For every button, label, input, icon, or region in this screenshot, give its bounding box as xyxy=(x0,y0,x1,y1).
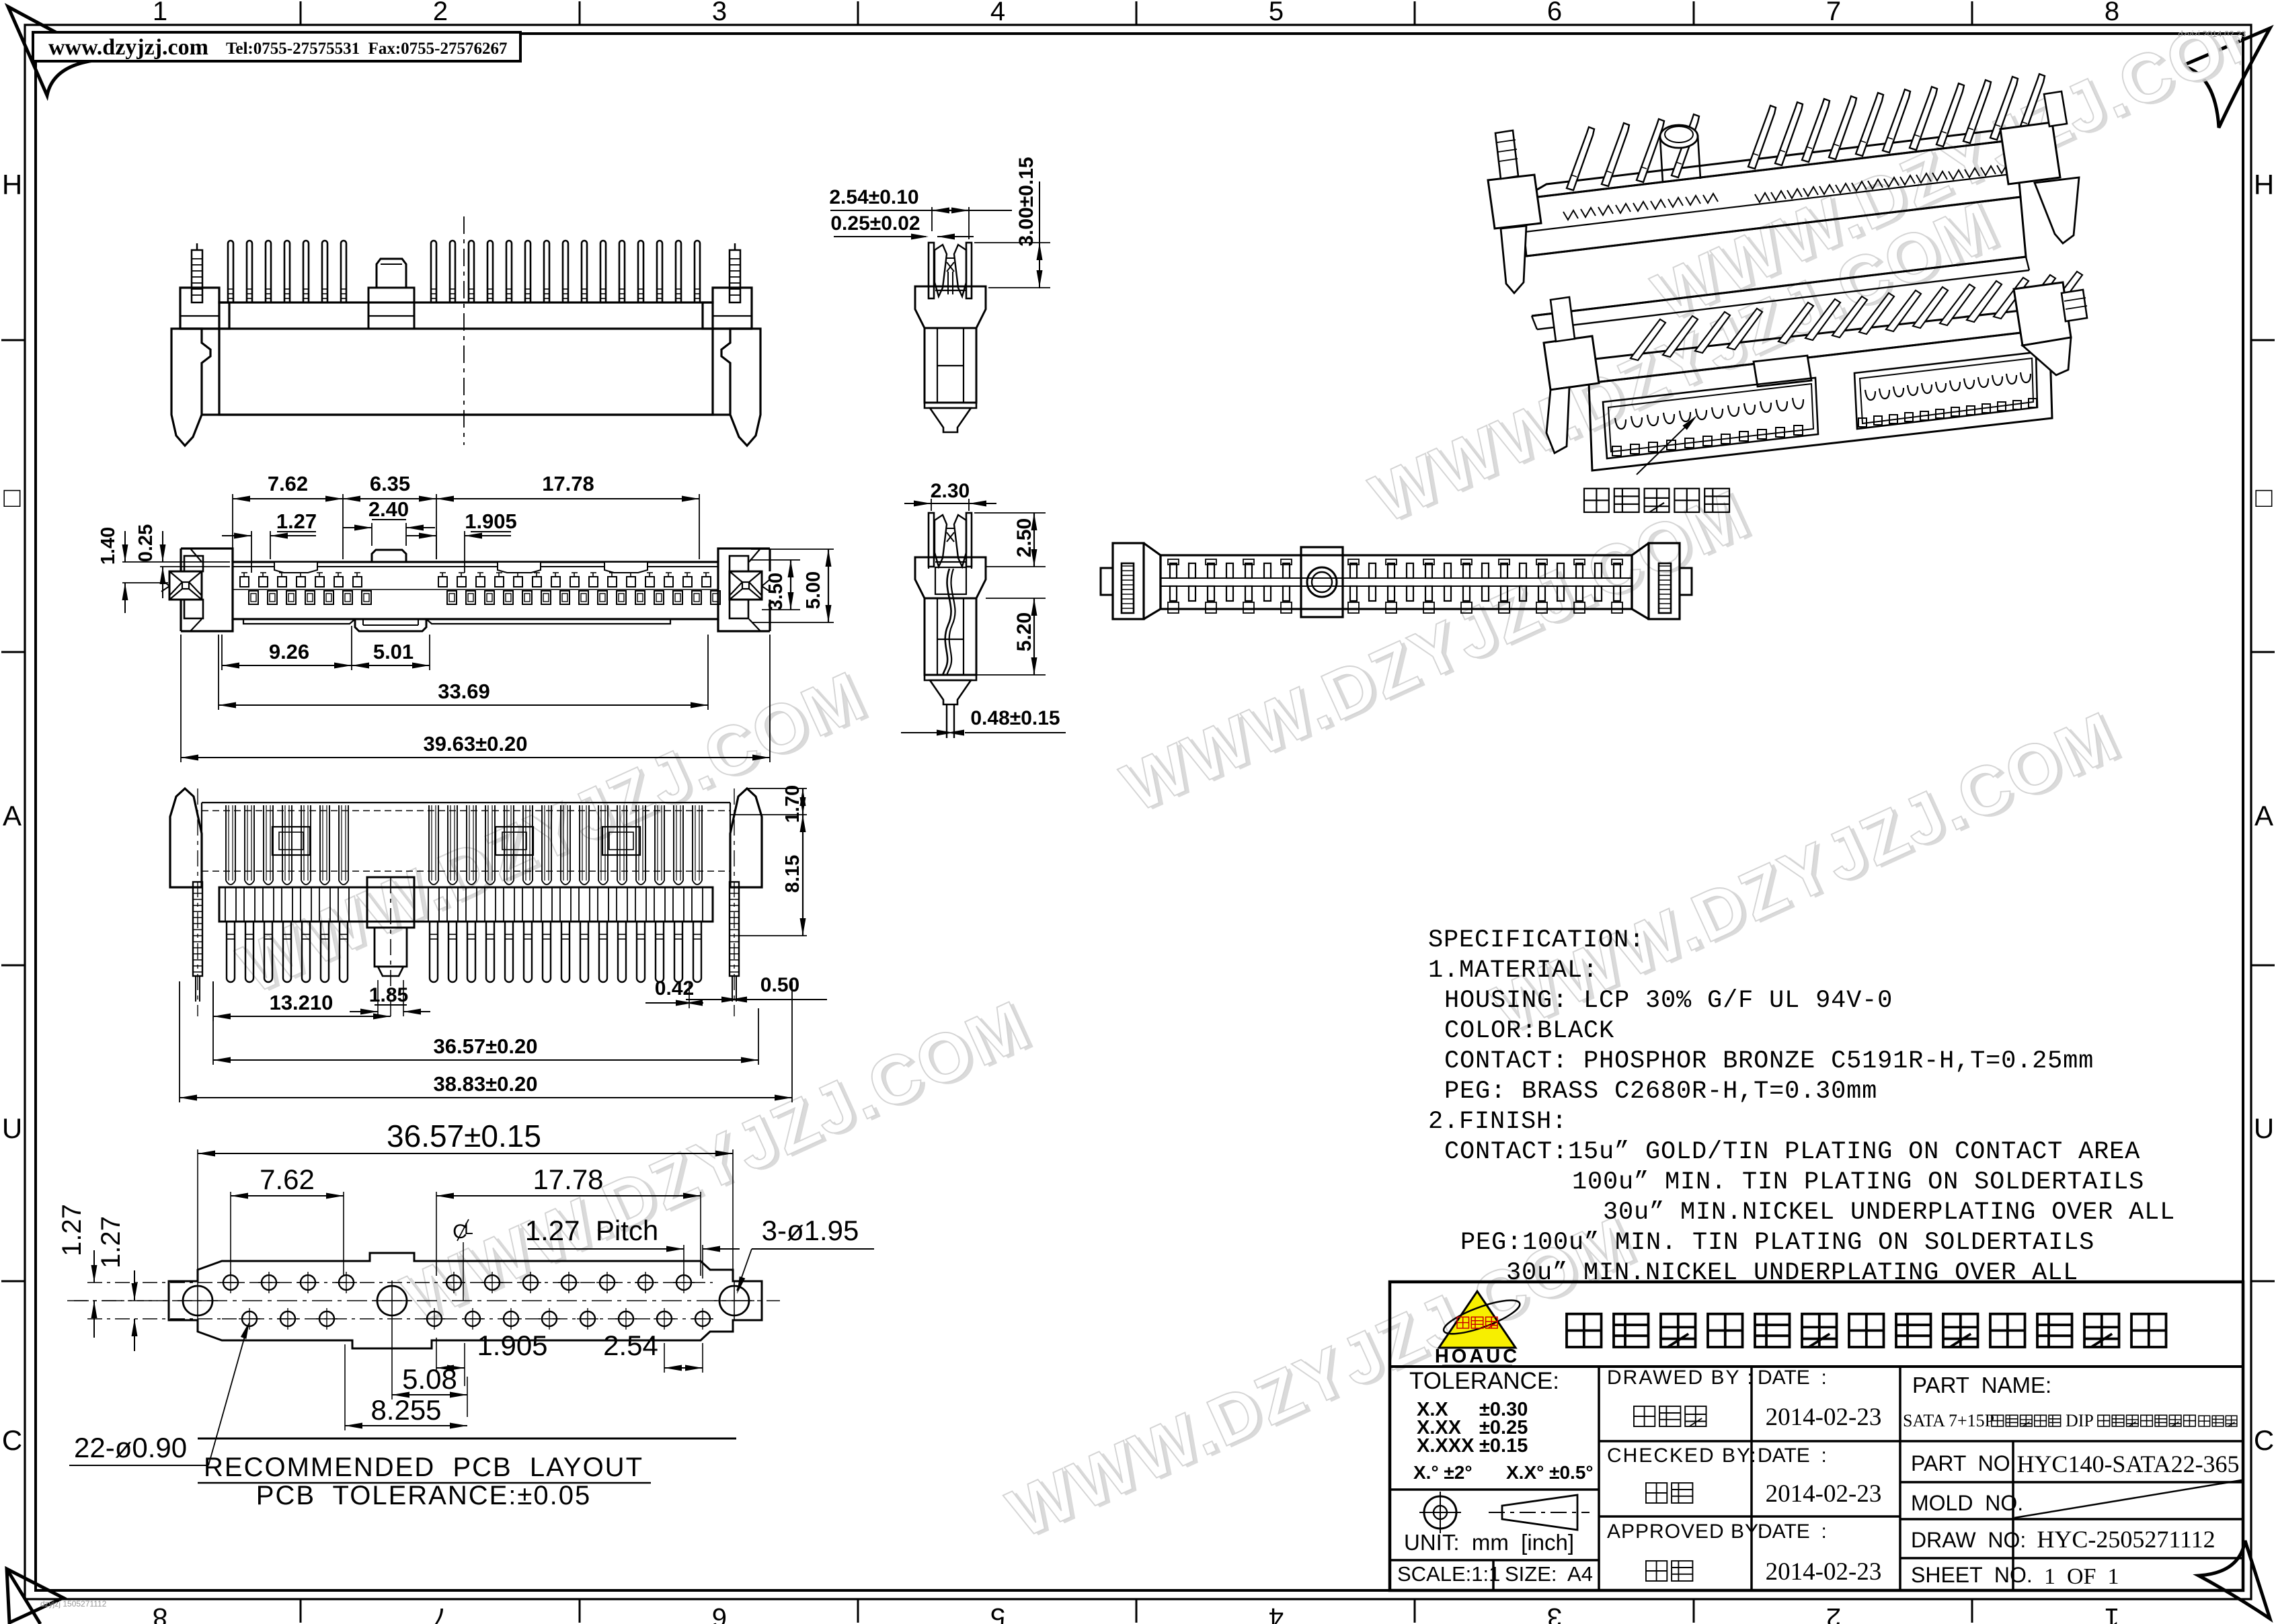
svg-text:36.57±0.20: 36.57±0.20 xyxy=(434,1034,538,1058)
svg-text:±0.15: ±0.15 xyxy=(1479,1435,1528,1457)
svg-text:DATE :: DATE : xyxy=(1758,1445,1827,1467)
svg-text:1.27 Pitch: 1.27 Pitch xyxy=(525,1215,658,1246)
svg-text:X.XXX: X.XXX xyxy=(1417,1435,1475,1457)
svg-text:DRAW NO:: DRAW NO: xyxy=(1911,1528,2026,1552)
svg-text:5.00: 5.00 xyxy=(803,571,824,609)
svg-text:PCB TOLERANCE:±0.05: PCB TOLERANCE:±0.05 xyxy=(256,1481,591,1510)
svg-text:SPECIFICATION:: SPECIFICATION: xyxy=(1428,926,1645,955)
svg-text:8: 8 xyxy=(2105,0,2119,26)
svg-text:2: 2 xyxy=(433,0,448,26)
svg-text:13.210: 13.210 xyxy=(270,991,333,1014)
svg-text:C: C xyxy=(2254,1424,2274,1456)
svg-text:6: 6 xyxy=(712,1602,727,1624)
svg-text:RECOMMENDED PCB LAYOUT: RECOMMENDED PCB LAYOUT xyxy=(204,1453,643,1482)
svg-text:L: L xyxy=(464,1220,473,1238)
svg-text:6.35: 6.35 xyxy=(370,472,410,495)
svg-text:H: H xyxy=(2,169,22,200)
svg-text:2.54±0.10: 2.54±0.10 xyxy=(829,186,918,208)
svg-text:22-ø0.90: 22-ø0.90 xyxy=(74,1432,187,1463)
svg-text:5.20: 5.20 xyxy=(1013,612,1035,651)
svg-text:2014-02-23: 2014-02-23 xyxy=(1766,1404,1882,1431)
svg-text:30u” MIN.NICKEL UNDERPLATING O: 30u” MIN.NICKEL UNDERPLATING OVER ALL xyxy=(1603,1199,2175,1227)
svg-text:7.62: 7.62 xyxy=(268,472,308,495)
svg-text:SCALE:1:1: SCALE:1:1 xyxy=(1397,1562,1500,1586)
svg-text:COLOR:BLACK: COLOR:BLACK xyxy=(1444,1017,1614,1045)
svg-text:TOLERANCE:: TOLERANCE: xyxy=(1409,1368,1559,1394)
svg-text:2.54: 2.54 xyxy=(603,1330,658,1361)
svg-text:2014-02-23: 2014-02-23 xyxy=(1766,1558,1882,1586)
svg-text:HOAUC: HOAUC xyxy=(1435,1346,1520,1367)
svg-text:DATE :: DATE : xyxy=(1758,1520,1827,1543)
svg-text:2.30: 2.30 xyxy=(931,480,970,502)
svg-text:2014-02-23: 2014-02-23 xyxy=(1766,1480,1882,1508)
svg-text:HYC140-SATA22-365: HYC140-SATA22-365 xyxy=(2016,1451,2239,1477)
svg-text:5.08: 5.08 xyxy=(402,1363,457,1395)
svg-text:www.dzyjzj.com: www.dzyjzj.com xyxy=(48,35,208,60)
svg-text:CHECKED BY:: CHECKED BY: xyxy=(1607,1445,1758,1467)
svg-text:1.40: 1.40 xyxy=(97,527,119,565)
svg-text:1 OF 1: 1 OF 1 xyxy=(2044,1564,2119,1589)
svg-text:X.X° ±0.5°: X.X° ±0.5° xyxy=(1506,1462,1594,1483)
svg-text:7.62: 7.62 xyxy=(260,1164,315,1195)
svg-text:dzyjzj 1505271112: dzyjzj 1505271112 xyxy=(40,1599,107,1609)
svg-text:SATA 7+15P: SATA 7+15P xyxy=(1903,1411,1994,1430)
svg-text:A: A xyxy=(2254,800,2273,831)
svg-text:PART NO.: PART NO. xyxy=(1911,1451,2016,1475)
svg-text:3.00±0.15: 3.00±0.15 xyxy=(1015,157,1037,246)
svg-text:7: 7 xyxy=(1826,0,1841,26)
svg-text:A: A xyxy=(3,800,22,831)
svg-text:SIZE: A4: SIZE: A4 xyxy=(1505,1562,1593,1586)
svg-text:1: 1 xyxy=(2105,1602,2119,1624)
svg-text:U: U xyxy=(2254,1112,2274,1144)
svg-text:17.78: 17.78 xyxy=(533,1164,603,1195)
svg-text:1.905: 1.905 xyxy=(477,1330,547,1361)
svg-text:MOLD NO.: MOLD NO. xyxy=(1911,1491,2023,1515)
svg-text:3.50: 3.50 xyxy=(765,573,787,610)
svg-text:8.255: 8.255 xyxy=(370,1394,441,1426)
svg-text:1.905: 1.905 xyxy=(465,510,517,533)
svg-text:C: C xyxy=(2,1424,22,1456)
svg-text:8: 8 xyxy=(153,1602,167,1624)
svg-text:X.° ±2°: X.° ±2° xyxy=(1413,1462,1473,1483)
svg-text:8.15: 8.15 xyxy=(782,855,803,893)
svg-text:□: □ xyxy=(3,481,21,513)
svg-text:100u” MIN. TIN PLATING ON SOLD: 100u” MIN. TIN PLATING ON SOLDERTAILS xyxy=(1572,1168,2144,1196)
svg-text:DATE :: DATE : xyxy=(1758,1367,1827,1389)
svg-text:3: 3 xyxy=(1547,1602,1562,1624)
svg-text:DRAWED BY :: DRAWED BY : xyxy=(1607,1367,1754,1389)
svg-text:9.26: 9.26 xyxy=(269,640,309,663)
svg-text:0.50: 0.50 xyxy=(760,974,799,996)
svg-text:0.25: 0.25 xyxy=(135,524,157,562)
svg-text:1.27: 1.27 xyxy=(57,1204,87,1256)
svg-text:1.85: 1.85 xyxy=(369,984,408,1006)
svg-text:H: H xyxy=(2254,169,2274,200)
svg-text:6: 6 xyxy=(1547,0,1562,26)
svg-text:PEG:100u” MIN. TIN PLATING ON: PEG:100u” MIN. TIN PLATING ON SOLDERTAIL… xyxy=(1460,1229,2094,1257)
svg-text:1.MATERIAL:: 1.MATERIAL: xyxy=(1428,957,1598,985)
svg-text:2.FINISH:: 2.FINISH: xyxy=(1428,1108,1567,1136)
svg-text:HYC-2505271112: HYC-2505271112 xyxy=(2037,1526,2215,1553)
svg-text:0.42: 0.42 xyxy=(655,977,694,1000)
svg-text:CONTACT: PHOSPHOR BRONZE C5191: CONTACT: PHOSPHOR BRONZE C5191R-H,T=0.25… xyxy=(1444,1047,2094,1075)
svg-text:4: 4 xyxy=(990,0,1005,26)
svg-text:38.83±0.20: 38.83±0.20 xyxy=(434,1072,538,1096)
svg-text:APPROVED BY:: APPROVED BY: xyxy=(1607,1520,1764,1543)
svg-text:□: □ xyxy=(2255,481,2273,513)
svg-text:36.57±0.15: 36.57±0.15 xyxy=(387,1119,541,1153)
svg-text:0.25±0.02: 0.25±0.02 xyxy=(830,212,920,235)
svg-text:2.40: 2.40 xyxy=(368,497,409,521)
svg-text:5: 5 xyxy=(990,1602,1005,1624)
svg-text:HOUSING: LCP 30% G/F UL 94V-0: HOUSING: LCP 30% G/F UL 94V-0 xyxy=(1444,987,1893,1015)
svg-text:PART NAME:: PART NAME: xyxy=(1912,1373,2051,1397)
svg-text:UNIT: mm [inch]: UNIT: mm [inch] xyxy=(1404,1530,1574,1555)
svg-text:2: 2 xyxy=(1826,1602,1841,1624)
svg-text:3-ø1.95: 3-ø1.95 xyxy=(762,1215,859,1246)
svg-text:39.63±0.20: 39.63±0.20 xyxy=(424,732,528,756)
svg-text:1: 1 xyxy=(153,0,167,26)
svg-text:DIP: DIP xyxy=(2066,1411,2094,1430)
svg-text:1.27: 1.27 xyxy=(96,1216,126,1268)
svg-text:7: 7 xyxy=(433,1602,448,1624)
svg-text:U: U xyxy=(2,1112,22,1144)
svg-text:CONTACT:15u” GOLD/TIN PLATING: CONTACT:15u” GOLD/TIN PLATING ON CONTACT… xyxy=(1444,1138,2140,1166)
svg-text:3: 3 xyxy=(712,0,727,26)
svg-text:5: 5 xyxy=(1269,0,1284,26)
svg-text:33.69: 33.69 xyxy=(438,680,490,703)
svg-text:5.01: 5.01 xyxy=(373,640,414,663)
svg-text:17.78: 17.78 xyxy=(542,472,594,495)
svg-text:0.48±0.15: 0.48±0.15 xyxy=(970,707,1060,729)
svg-text:1.27: 1.27 xyxy=(276,510,317,533)
svg-text:PEG: BRASS C2680R-H,T=0.30mm: PEG: BRASS C2680R-H,T=0.30mm xyxy=(1444,1078,1877,1106)
svg-text:Tel:0755-27575531 Fax:0755-27: Tel:0755-27575531 Fax:0755-27576267 xyxy=(226,40,508,58)
svg-text:4: 4 xyxy=(1269,1602,1284,1624)
